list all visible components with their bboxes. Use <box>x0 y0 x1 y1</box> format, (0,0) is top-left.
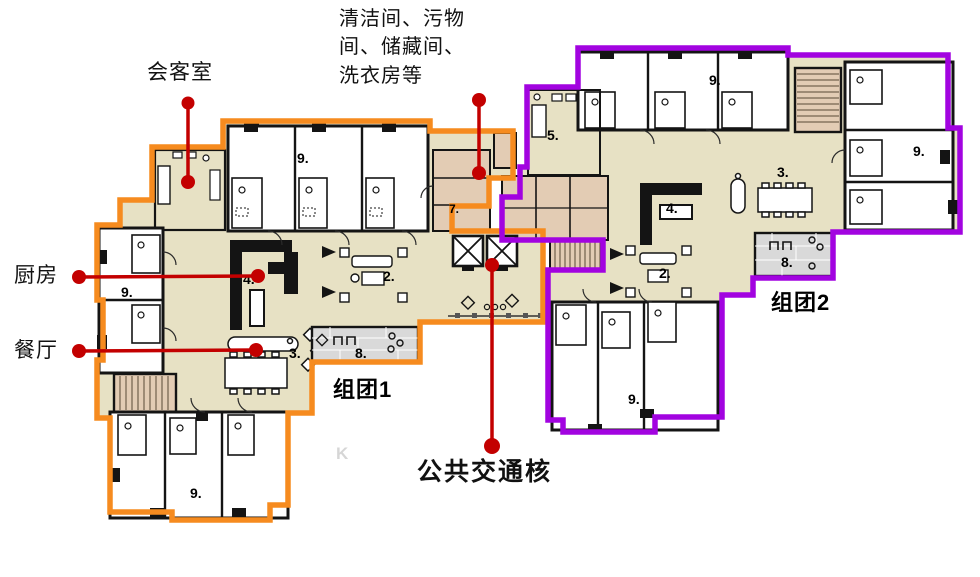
cluster1-label: 组团1 <box>333 372 392 404</box>
kitchen-label: 厨房 <box>14 261 58 291</box>
room-number: 5. <box>547 127 559 143</box>
room-number: 3. <box>777 164 789 180</box>
room-number: 7. <box>449 202 459 216</box>
cluster2-label: 组团2 <box>771 285 830 317</box>
room-number: 9. <box>121 284 133 300</box>
room-number: 2. <box>383 268 395 284</box>
room-number: 9. <box>190 485 202 501</box>
room-number: 8. <box>781 254 793 270</box>
room-number: 4. <box>666 200 678 216</box>
transport-core-label: 公共交通核 <box>417 455 552 491</box>
watermark-text: K <box>336 444 348 464</box>
dining-room-label: 餐厅 <box>14 336 58 366</box>
c2-bedrooms-bottom-block <box>552 302 718 430</box>
room-number: 2. <box>659 265 671 281</box>
c1-bedrooms-bottom-block <box>110 412 288 518</box>
room-number: 8. <box>355 345 367 361</box>
c2-bedrooms-right-block <box>845 62 953 230</box>
stairs-core <box>550 240 603 270</box>
stairs-cluster2 <box>795 68 841 132</box>
floor-plan-figure: 9. 7. 2. 3. 4. 8. 9. 9. 5. 9. 9. 3. 4. 2… <box>0 0 980 577</box>
service-rooms-label: 清洁间、污物 间、储藏间、 洗衣房等 <box>339 5 514 90</box>
room-number: 9. <box>628 391 640 407</box>
c2-terrace-area <box>755 233 833 276</box>
meeting-room-label: 会客室 <box>147 58 213 88</box>
c1-bedrooms-top-block <box>228 126 428 231</box>
room-number: 9. <box>709 72 721 88</box>
room-number: 3. <box>289 345 301 361</box>
stairs-cluster1 <box>114 374 176 412</box>
c2-bedrooms-top-block <box>578 52 788 130</box>
room-number: 9. <box>913 143 925 159</box>
room-number: 9. <box>297 150 309 166</box>
